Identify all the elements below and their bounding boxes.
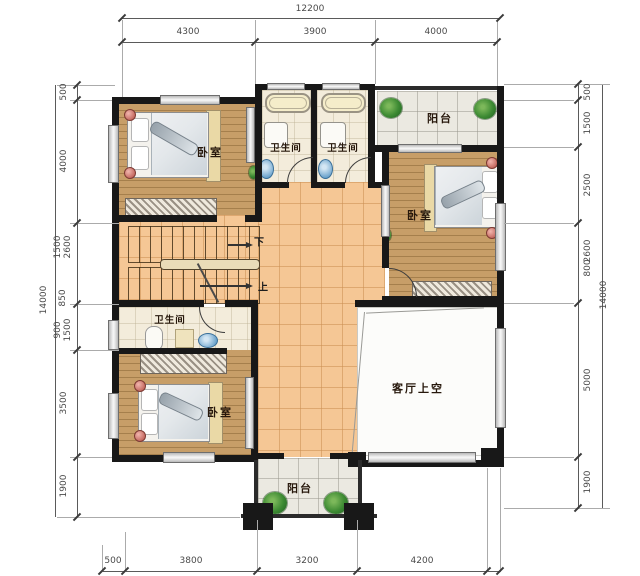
window <box>368 452 476 463</box>
dim-label: 500 <box>59 83 69 100</box>
extension-line <box>504 223 574 224</box>
dim-label-right-total: 14000 <box>599 281 609 310</box>
extension-line <box>487 468 488 572</box>
wall-segment <box>112 215 217 222</box>
wall-post <box>481 448 504 467</box>
wall-segment <box>119 348 227 354</box>
extension-line <box>57 517 240 518</box>
dimension-line-top-segments <box>122 42 497 43</box>
sliding-door <box>381 185 390 237</box>
stair-handrail <box>160 259 260 270</box>
extension-line <box>255 20 256 84</box>
dim-label: 4300 <box>177 27 200 37</box>
sink-bath-bottomleft <box>198 333 218 348</box>
dim-label: 900 <box>53 321 63 338</box>
extension-line <box>504 508 610 509</box>
bathtub-inner <box>325 97 362 109</box>
window <box>495 328 506 428</box>
dim-label-left-total: 14000 <box>39 286 49 315</box>
floor-hall-upper <box>258 182 385 303</box>
dim-label: 1500 <box>63 319 73 342</box>
window <box>108 125 119 183</box>
extension-line <box>504 303 574 304</box>
extension-line <box>504 147 574 148</box>
dim-label: 4200 <box>411 556 434 566</box>
room-label-bedroom-topleft: 卧室 <box>197 144 223 160</box>
extension-line <box>504 457 574 458</box>
window <box>108 320 119 350</box>
extension-line <box>375 20 376 84</box>
dim-label: 1500 <box>583 112 593 135</box>
window <box>495 203 506 271</box>
room-label-bedroom-right: 卧室 <box>407 207 433 223</box>
room-label-living-void: 客厅上空 <box>392 380 444 396</box>
wall-segment <box>258 453 284 459</box>
extension-line <box>125 532 126 572</box>
dim-label: 850 <box>58 289 68 306</box>
dim-label: 3200 <box>296 556 319 566</box>
window <box>108 393 119 439</box>
nightstand <box>124 109 136 121</box>
bathtub-2 <box>321 93 366 113</box>
column <box>243 503 273 530</box>
nightstand <box>134 380 146 392</box>
dim-label: 800 <box>583 259 593 276</box>
dim-label: 3800 <box>180 556 203 566</box>
window <box>267 83 305 90</box>
stair-arrow-up-line <box>200 285 246 287</box>
wall-segment <box>313 182 345 188</box>
extension-line <box>500 468 501 572</box>
plant-icon <box>474 99 496 119</box>
dim-label: 4000 <box>425 27 448 37</box>
stair-arrow-down-line <box>228 244 248 246</box>
bathtub-inner <box>269 97 307 109</box>
dimension-tick <box>496 567 504 575</box>
column <box>344 503 374 530</box>
extension-line <box>357 520 358 572</box>
nightstand <box>134 430 146 442</box>
stair-label-up: 上 <box>258 279 268 294</box>
shower-mat <box>175 329 194 348</box>
balcony-top-railing <box>375 86 504 90</box>
wall-segment <box>245 215 262 222</box>
dim-label: 2500 <box>583 174 593 197</box>
room-label-bathroom-2: 卫生间 <box>327 140 359 154</box>
room-label-bathroom-bottomleft: 卫生间 <box>154 312 186 326</box>
dimension-line-bottom <box>102 571 500 572</box>
room-label-bedroom-bottomleft: 卧室 <box>207 404 233 420</box>
wall-segment <box>112 300 204 307</box>
floor-plan-canvas: 卧室 卫生间 卫生间 阳台 卧室 卫生间 卧室 客厅上空 阳台 下 上 <box>0 0 640 576</box>
dim-label: 4000 <box>59 150 69 173</box>
stair-label-down: 下 <box>254 234 264 249</box>
dim-label: 5000 <box>583 369 593 392</box>
toilet-bath-2 <box>318 159 333 179</box>
dim-label: 1500 <box>53 236 63 259</box>
extension-line <box>504 84 610 85</box>
extension-line <box>497 20 498 86</box>
dim-label: 1900 <box>59 475 69 498</box>
room-label-balcony-bottom: 阳台 <box>287 480 313 496</box>
plant-icon <box>380 98 402 118</box>
wall-segment <box>255 84 262 222</box>
wardrobe-hatch-bottomleft <box>140 353 227 374</box>
dim-label: 1900 <box>583 471 593 494</box>
bed-pillow <box>131 146 149 170</box>
window <box>160 95 220 105</box>
stair-arrow-down-head <box>246 242 253 248</box>
room-label-balcony-top: 阳台 <box>427 110 453 126</box>
extension-line <box>257 520 258 572</box>
window <box>322 83 360 90</box>
stair-arrow-up-head <box>246 283 253 289</box>
floor-hall-lower <box>258 303 358 457</box>
sliding-door <box>245 377 254 449</box>
dim-label: 2600 <box>63 236 73 259</box>
sliding-door <box>246 107 255 163</box>
nightstand <box>124 167 136 179</box>
wall-segment <box>330 453 358 459</box>
wall-segment <box>255 182 289 188</box>
wall-segment <box>382 296 504 303</box>
bed-pillow <box>141 389 158 411</box>
window <box>398 144 462 153</box>
dim-label: 500 <box>583 83 593 100</box>
bathtub-1 <box>265 93 311 113</box>
extension-line <box>504 100 574 101</box>
dimension-tick <box>496 14 504 22</box>
dim-label-top-total: 12200 <box>296 4 325 14</box>
room-label-bathroom-1: 卫生间 <box>270 140 302 154</box>
dim-label: 500 <box>104 556 121 566</box>
bed-pillow <box>131 118 149 142</box>
window <box>163 452 215 463</box>
extension-line <box>122 20 123 97</box>
dimension-line-top-total <box>122 18 500 19</box>
dim-label: 3500 <box>59 392 69 415</box>
dim-label: 3900 <box>304 27 327 37</box>
dimension-line-left-outer <box>55 85 56 517</box>
